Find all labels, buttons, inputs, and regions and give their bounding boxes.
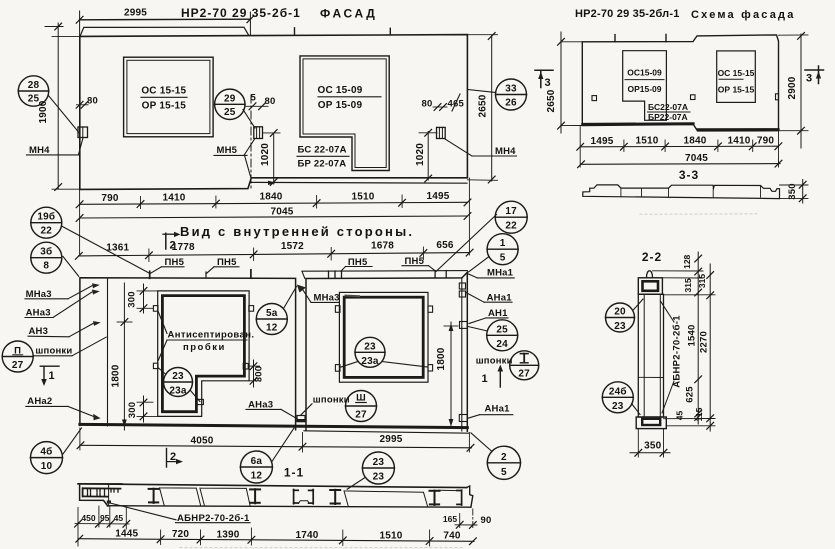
svg-text:2: 2 — [501, 452, 507, 463]
svg-text:1840: 1840 — [259, 192, 282, 203]
svg-text:1678: 1678 — [371, 240, 394, 251]
svg-text:1900: 1900 — [38, 100, 49, 123]
svg-text:24б: 24б — [609, 385, 627, 397]
svg-text:1800: 1800 — [436, 347, 447, 370]
svg-text:12: 12 — [251, 471, 263, 482]
svg-text:Вид с внутренней стороны.: Вид с внутренней стороны. — [180, 224, 414, 239]
svg-text:БС 22-07А: БС 22-07А — [298, 145, 347, 156]
svg-text:2: 2 — [170, 451, 176, 463]
svg-text:20: 20 — [614, 307, 626, 318]
svg-text:1572: 1572 — [281, 241, 304, 252]
svg-text:10: 10 — [41, 461, 53, 472]
svg-text:1: 1 — [49, 370, 55, 382]
svg-text:45: 45 — [675, 411, 685, 421]
svg-text:МН4: МН4 — [29, 145, 50, 156]
svg-text:1410: 1410 — [162, 192, 185, 203]
svg-text:7045: 7045 — [270, 207, 293, 218]
svg-text:БР 22-07А: БР 22-07А — [298, 159, 347, 170]
svg-text:1510: 1510 — [351, 191, 374, 202]
svg-text:24: 24 — [496, 339, 508, 350]
svg-text:АБНР2-70-2б-1: АБНР2-70-2б-1 — [672, 315, 683, 388]
svg-text:27: 27 — [518, 368, 530, 379]
svg-text:ПН5: ПН5 — [217, 257, 237, 268]
svg-text:7045: 7045 — [685, 153, 708, 164]
svg-text:БС22-07А: БС22-07А — [648, 102, 688, 112]
svg-text:25: 25 — [224, 107, 236, 118]
svg-text:АНа3: АНа3 — [26, 308, 51, 319]
svg-text:33: 33 — [505, 84, 517, 95]
svg-text:2995: 2995 — [379, 434, 402, 445]
svg-text:ОС 15-15: ОС 15-15 — [718, 68, 755, 78]
svg-text:ПН5: ПН5 — [165, 257, 185, 268]
svg-text:23: 23 — [373, 457, 385, 468]
svg-text:2270: 2270 — [699, 331, 710, 353]
svg-text:790: 790 — [101, 193, 119, 204]
svg-text:ФАСАД: ФАСАД — [320, 7, 377, 21]
svg-text:ОС 15-15: ОС 15-15 — [141, 86, 186, 97]
svg-text:1740: 1740 — [295, 530, 318, 541]
svg-text:22: 22 — [41, 226, 53, 237]
svg-text:23а: 23а — [169, 386, 187, 397]
svg-text:23: 23 — [373, 472, 385, 483]
svg-text:1510: 1510 — [635, 136, 658, 147]
svg-text:740: 740 — [443, 531, 461, 542]
svg-text:ОС 15-09: ОС 15-09 — [318, 85, 363, 96]
svg-text:АН3: АН3 — [29, 326, 49, 337]
svg-text:165: 165 — [443, 514, 457, 524]
svg-text:1: 1 — [500, 238, 506, 249]
svg-text:1020: 1020 — [415, 143, 426, 166]
svg-text:300: 300 — [127, 291, 138, 307]
svg-text:2650: 2650 — [478, 94, 489, 117]
svg-text:1510: 1510 — [379, 530, 402, 541]
svg-text:АНа2: АНа2 — [27, 396, 52, 407]
svg-text:790: 790 — [757, 135, 775, 146]
svg-text:315: 315 — [697, 274, 707, 288]
svg-text:АБНР2-70-2б-1: АБНР2-70-2б-1 — [177, 513, 250, 524]
svg-text:АНа1: АНа1 — [487, 292, 513, 303]
svg-text:ОС15-09: ОС15-09 — [627, 68, 662, 78]
svg-text:80: 80 — [422, 98, 433, 109]
svg-text:1540: 1540 — [686, 325, 697, 347]
svg-text:656: 656 — [436, 240, 454, 251]
svg-text:2995: 2995 — [124, 8, 147, 19]
svg-text:1800: 1800 — [111, 364, 122, 387]
svg-text:АНа1: АНа1 — [485, 403, 511, 414]
svg-text:ОР15-09: ОР15-09 — [627, 84, 661, 94]
svg-text:720: 720 — [172, 529, 190, 540]
svg-text:1840: 1840 — [683, 136, 706, 147]
svg-text:8: 8 — [43, 261, 49, 272]
svg-text:НР2-70 29 35-2бл-1: НР2-70 29 35-2бл-1 — [575, 8, 680, 20]
svg-text:27: 27 — [355, 410, 367, 421]
svg-text:ОР 15-09: ОР 15-09 — [318, 100, 363, 111]
svg-text:МНа1: МНа1 — [487, 267, 514, 278]
svg-text:5а: 5а — [266, 308, 278, 319]
svg-text:2-2: 2-2 — [642, 250, 662, 264]
svg-text:1445: 1445 — [115, 529, 138, 540]
svg-text:3б: 3б — [40, 246, 52, 258]
svg-text:23: 23 — [612, 401, 624, 412]
svg-text:НР2-70 29 35-2б-1: НР2-70 29 35-2б-1 — [181, 6, 301, 20]
svg-text:17: 17 — [505, 206, 517, 217]
svg-text:МН5: МН5 — [217, 145, 238, 156]
svg-text:115: 115 — [694, 407, 704, 421]
svg-text:1: 1 — [482, 373, 488, 385]
svg-text:80: 80 — [87, 96, 98, 107]
svg-text:28: 28 — [28, 80, 40, 91]
svg-text:22: 22 — [505, 221, 517, 232]
svg-text:23: 23 — [614, 321, 626, 332]
svg-text:ОР 15-15: ОР 15-15 — [718, 85, 755, 95]
svg-text:3: 3 — [545, 77, 551, 89]
svg-text:350: 350 — [787, 183, 798, 199]
svg-text:6а: 6а — [251, 456, 263, 467]
svg-text:1390: 1390 — [216, 529, 239, 540]
svg-text:23а: 23а — [361, 356, 379, 367]
svg-text:1410: 1410 — [727, 136, 750, 147]
svg-text:шпонки: шпонки — [35, 345, 72, 356]
svg-text:Антисептирован.: Антисептирован. — [168, 330, 255, 341]
svg-text:МНа3: МНа3 — [26, 289, 52, 300]
svg-text:1020: 1020 — [260, 143, 271, 166]
svg-text:315: 315 — [683, 278, 693, 292]
svg-text:3: 3 — [806, 73, 812, 85]
svg-text:27: 27 — [12, 360, 24, 371]
svg-text:2900: 2900 — [787, 76, 798, 99]
svg-text:1495: 1495 — [590, 136, 613, 147]
svg-text:2: 2 — [170, 240, 176, 252]
svg-text:Схема фасада: Схема фасада — [691, 9, 796, 21]
svg-text:80: 80 — [265, 96, 276, 107]
svg-text:29: 29 — [224, 93, 236, 104]
svg-text:12: 12 — [266, 323, 278, 334]
svg-text:3-3: 3-3 — [679, 168, 699, 182]
svg-text:5: 5 — [501, 467, 507, 478]
svg-text:шпонки: шпонки — [476, 355, 513, 366]
svg-text:23: 23 — [172, 371, 184, 382]
svg-text:1-1: 1-1 — [284, 466, 304, 480]
svg-text:шпонки: шпонки — [313, 394, 350, 405]
svg-text:450: 450 — [81, 513, 95, 523]
svg-text:пробки: пробки — [183, 342, 226, 353]
svg-text:26: 26 — [505, 98, 517, 109]
svg-text:625: 625 — [684, 386, 695, 403]
svg-text:95: 95 — [100, 513, 110, 523]
svg-text:300: 300 — [254, 366, 265, 382]
svg-text:2650: 2650 — [546, 89, 557, 112]
svg-text:23: 23 — [364, 341, 376, 352]
svg-text:МН4: МН4 — [495, 146, 516, 157]
svg-text:19б: 19б — [37, 211, 55, 223]
svg-text:90: 90 — [481, 515, 492, 526]
svg-text:45: 45 — [114, 513, 124, 523]
svg-text:5: 5 — [500, 253, 506, 264]
svg-text:128: 128 — [682, 254, 692, 268]
svg-text:АНа3: АНа3 — [248, 399, 273, 410]
svg-text:БР22-07А: БР22-07А — [648, 112, 688, 122]
svg-text:4б: 4б — [40, 446, 52, 458]
svg-text:ОР 15-15: ОР 15-15 — [142, 101, 187, 112]
svg-text:25: 25 — [496, 324, 508, 335]
svg-text:350: 350 — [644, 440, 662, 451]
svg-text:300: 300 — [127, 402, 138, 418]
svg-text:1495: 1495 — [426, 191, 449, 202]
svg-text:4050: 4050 — [190, 435, 213, 446]
